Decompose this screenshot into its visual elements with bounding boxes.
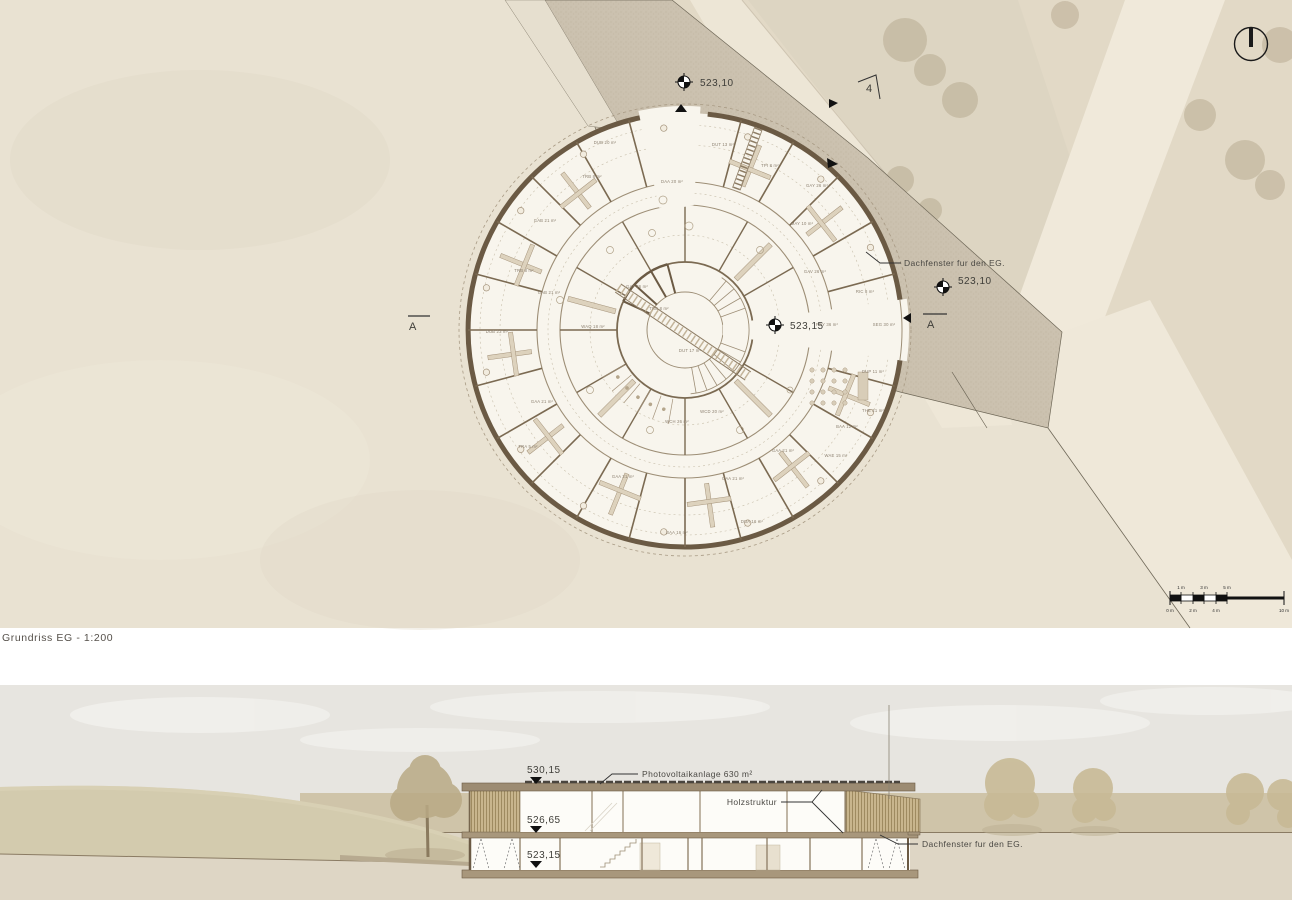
- room-label: DUT 13 m²: [712, 142, 735, 147]
- detail-marker: 4: [866, 83, 873, 95]
- base-slab: [462, 870, 918, 878]
- roof-slab: [462, 783, 915, 791]
- site-plan: DUB 23 m² TRB 8 m² GAB 21 m² GAB 21 m² T…: [0, 0, 1292, 630]
- room-label: TRE 8 m²: [649, 306, 669, 311]
- room-label: SEG 30 m²: [873, 322, 896, 327]
- section-view: 530,15 526,65 523,15 Photovoltaikanlage …: [0, 685, 1292, 900]
- room-label: GAA 21 m²: [722, 476, 745, 481]
- room-label: TPI 8 m²: [761, 163, 779, 168]
- roof-note-plan: Dachfenster fur den EG.: [904, 258, 1005, 268]
- plan-caption: Grundriss EG - 1:200: [2, 632, 113, 644]
- level-upper: 526,65: [527, 815, 561, 826]
- room-label: GAY 26 m²: [806, 183, 829, 188]
- spot-elevation-top: 523,10: [700, 78, 734, 89]
- room-label: GAA 21 m²: [531, 399, 554, 404]
- room-label: DUP 11 m²: [862, 369, 885, 374]
- room-label: RIC 8 m²: [856, 289, 875, 294]
- room-label: THE 21 m²: [862, 408, 884, 413]
- section-marker-left: A: [409, 321, 417, 333]
- room-label: DUA 16 m²: [741, 519, 764, 524]
- room-label: DUB 23 m²: [486, 329, 509, 334]
- scale-label: 2 m: [1189, 608, 1197, 613]
- level-ground: 523,15: [527, 850, 561, 861]
- scale-label: 3 m: [1200, 585, 1208, 590]
- room-label: BAA 16 m²: [666, 530, 688, 535]
- spot-elevation-plaza: 523,10: [958, 276, 992, 287]
- room-label: GAA 21 m²: [772, 448, 795, 453]
- room-label: GAA 21 m²: [612, 474, 635, 479]
- room-label: WAQ 18 m²: [581, 324, 605, 329]
- section-marker-right: A: [927, 319, 935, 331]
- room-label: GAB 21 m²: [538, 290, 561, 295]
- room-label: MAY 10 m²: [791, 221, 814, 226]
- room-label: GAT 26 m²: [626, 284, 648, 289]
- room-label: WCD 20 m²: [700, 409, 724, 414]
- scale-label: 10 m: [1279, 608, 1289, 613]
- room-label: TRA 5 m²: [518, 444, 538, 449]
- room-label: TRB 8 m²: [582, 174, 602, 179]
- roof-note-section: Dachfenster fur den EG.: [922, 839, 1023, 849]
- upper-floor: [520, 791, 845, 832]
- room-label: DAA 20 m²: [661, 179, 683, 184]
- floor-slab: [462, 832, 918, 838]
- room-label: DUT 17 m²: [679, 348, 702, 353]
- pv-note: Photovoltaikanlage 630 m²: [642, 769, 753, 779]
- sheet-svg: DUB 23 m² TRB 8 m² GAB 21 m² GAB 21 m² T…: [0, 0, 1292, 900]
- room-label: WAE 15 m²: [824, 453, 847, 458]
- wood-facade-panel: [470, 788, 520, 832]
- room-label: DUB 20 m²: [594, 140, 617, 145]
- room-label: GAB 21 m²: [534, 218, 557, 223]
- drawing-sheet: DUB 23 m² TRB 8 m² GAB 21 m² GAB 21 m² T…: [0, 0, 1292, 900]
- room-label: TRB 8 m²: [514, 268, 534, 273]
- scale-label: 1 m: [1177, 585, 1185, 590]
- level-roof: 530,15: [527, 765, 561, 776]
- scale-label: 0 m: [1166, 608, 1174, 613]
- room-label: WCH 26 m²: [665, 419, 689, 424]
- scale-label: 5 m: [1223, 585, 1231, 590]
- scale-label: 4 m: [1212, 608, 1220, 613]
- room-label: GAV 26 m²: [804, 269, 827, 274]
- room-label: BAA 12 m²: [836, 424, 858, 429]
- wood-note: Holzstruktur: [727, 797, 777, 807]
- spot-elevation-court: 523,15: [790, 321, 824, 332]
